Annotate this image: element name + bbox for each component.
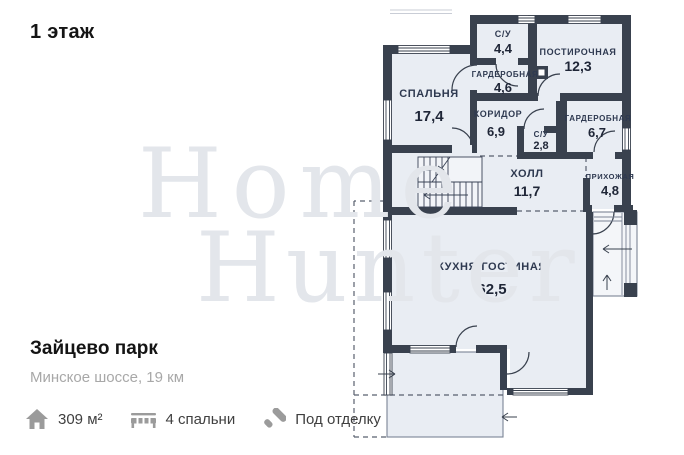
room-area-hall: 11,7 [514, 183, 541, 199]
porch-pillar [624, 283, 637, 297]
room-area-bathroom-2: 2,8 [533, 140, 548, 152]
house-icon [25, 408, 49, 430]
room-area-laundry: 12,3 [564, 58, 591, 74]
feature-bedrooms: 4 спальни [130, 409, 236, 429]
room-label-wardrobe-2: ГАРДЕРОБНАЯ [565, 114, 632, 123]
feature-area-label: 309 м² [58, 411, 103, 428]
room-area-wardrobe-2: 6,7 [588, 125, 606, 140]
feature-finish: Под отделку [262, 408, 381, 430]
paint-roller-icon [262, 408, 286, 430]
room-area-wardrobe-1: 4,6 [494, 80, 512, 95]
room-label-bedroom: СПАЛЬНЯ [399, 88, 459, 100]
bed-icon [130, 409, 157, 429]
listing-card: 1 этаж Home Hunter [0, 0, 684, 455]
floor-plan: СПАЛЬНЯ 17,4 С/У 4,4 ГАРДЕРОБНАЯ 4,6 ПОС… [0, 0, 684, 455]
listing-subtitle: Минское шоссе, 19 км [30, 369, 184, 386]
porch-pillar [624, 210, 637, 225]
room-area-entryway: 4,8 [601, 183, 619, 198]
staircase [418, 157, 482, 207]
room-label-bathroom-1: С/У [495, 29, 511, 39]
feature-finish-label: Под отделку [295, 411, 381, 428]
room-area-kitchen-living: 62,5 [477, 281, 506, 298]
room-label-corridor: КОРИДОР [474, 109, 523, 119]
listing-info: Зайцево парк Минское шоссе, 19 км [30, 338, 184, 386]
room-label-wardrobe-1: ГАРДЕРОБНАЯ [472, 70, 539, 79]
room-label-kitchen-living: КУХНЯ-ГОСТИНАЯ [437, 261, 547, 273]
feature-area: 309 м² [25, 408, 103, 430]
room-area-bathroom-1: 4,4 [494, 41, 513, 56]
room-label-laundry: ПОСТИРОЧНАЯ [540, 47, 617, 57]
feature-bedrooms-label: 4 спальни [166, 411, 236, 428]
room-label-bathroom-2: С/У [534, 130, 549, 139]
feature-list: 309 м² 4 спальни Под отделку [25, 408, 381, 430]
listing-title: Зайцево парк [30, 338, 184, 360]
room-area-corridor: 6,9 [487, 124, 505, 139]
window-ledge [390, 10, 452, 14]
room-label-hall: ХОЛЛ [510, 168, 543, 180]
room-label-entryway: ПРИХОЖАЯ [586, 172, 635, 181]
room-area-bedroom: 17,4 [414, 108, 444, 125]
